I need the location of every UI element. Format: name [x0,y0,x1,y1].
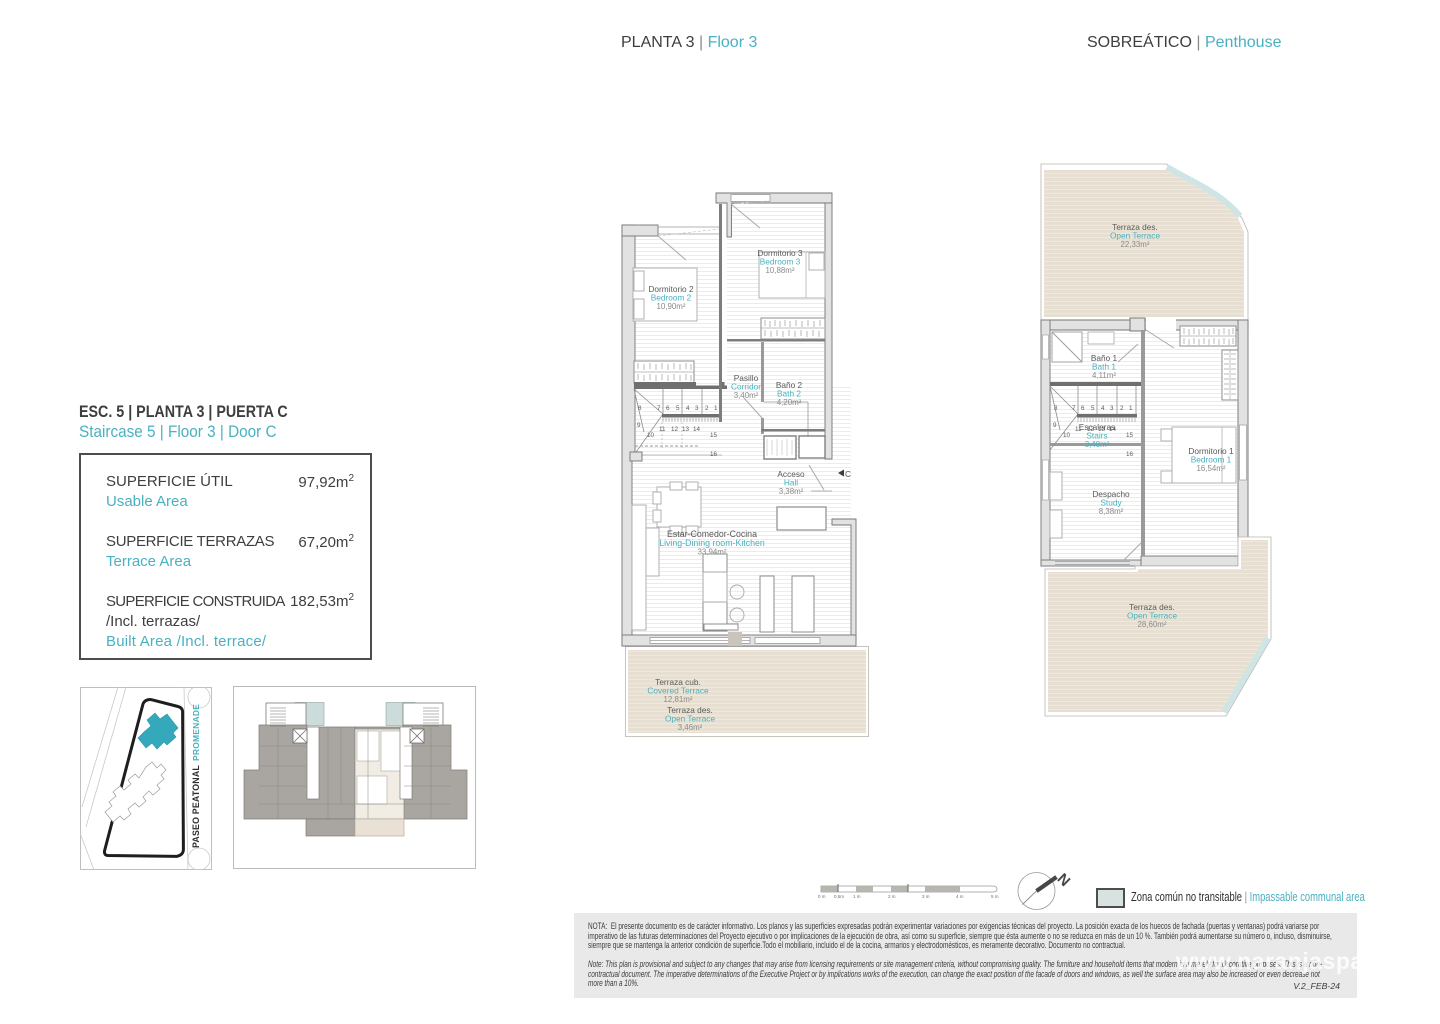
svg-text:1: 1 [714,405,718,412]
svg-text:16,54m²: 16,54m² [1197,464,1226,473]
svg-text:Study: Study [1100,498,1122,508]
svg-text:10,90m²: 10,90m² [657,302,686,311]
svg-text:4: 4 [1101,405,1105,412]
svg-text:5: 5 [1091,405,1095,412]
svg-text:14: 14 [693,426,701,433]
svg-text:7: 7 [657,405,661,412]
svg-text:Bath 1: Bath 1 [1092,362,1116,372]
svg-text:8: 8 [638,405,642,412]
svg-text:8: 8 [1054,405,1058,412]
svg-text:Bedroom 2: Bedroom 2 [651,293,692,303]
svg-text:4,20m²: 4,20m² [777,398,802,407]
svg-text:4 m: 4 m [956,894,964,899]
svg-text:9: 9 [1053,422,1057,429]
svg-text:Covered Terrace: Covered Terrace [647,686,709,696]
svg-text:3: 3 [695,405,699,412]
svg-text:15: 15 [1126,432,1134,439]
svg-text:3,46m²: 3,46m² [678,723,703,732]
svg-text:7: 7 [1072,405,1076,412]
svg-text:1: 1 [1129,405,1133,412]
svg-text:8,38m²: 8,38m² [1099,507,1124,516]
svg-text:11: 11 [659,426,666,433]
svg-text:3,48m²: 3,48m² [1085,440,1110,449]
svg-text:Corridor: Corridor [731,382,761,392]
svg-text:PASEO PEATONAL: PASEO PEATONAL [191,765,201,848]
svg-text:Bedroom 1: Bedroom 1 [1191,455,1232,465]
svg-text:10,88m²: 10,88m² [766,266,795,275]
svg-text:33,94m²: 33,94m² [698,548,727,557]
svg-text:3 m: 3 m [922,894,930,899]
svg-text:Hall: Hall [784,478,798,488]
svg-text:2: 2 [705,405,709,412]
svg-text:Living-Dining room-Kitchen: Living-Dining room-Kitchen [659,538,765,548]
svg-text:N: N [1054,870,1074,890]
svg-text:16: 16 [710,451,718,458]
svg-text:Open Terrace: Open Terrace [665,714,716,724]
svg-text:9: 9 [637,422,641,429]
svg-text:2: 2 [1120,405,1124,412]
svg-text:12: 12 [671,426,679,433]
svg-text:22,33m²: 22,33m² [1121,240,1150,249]
svg-text:13: 13 [682,426,690,433]
svg-text:C: C [845,469,851,479]
svg-text:10: 10 [1063,432,1071,439]
svg-text:3,38m²: 3,38m² [779,487,804,496]
svg-text:Bedroom 3: Bedroom 3 [760,257,801,267]
svg-text:6: 6 [666,405,670,412]
svg-text:4: 4 [686,405,690,412]
svg-text:Bath 2: Bath 2 [777,389,801,399]
svg-text:16: 16 [1126,451,1134,458]
svg-text:28,60m²: 28,60m² [1138,620,1167,629]
svg-text:5: 5 [676,405,680,412]
svg-text:Open Terrace: Open Terrace [1127,611,1178,621]
svg-text:12,81m²: 12,81m² [664,695,693,704]
svg-text:5 m: 5 m [991,894,999,899]
svg-text:15: 15 [710,432,718,439]
svg-text:0,5m: 0,5m [834,894,844,899]
svg-text:0 m: 0 m [818,894,826,899]
svg-text:2 m: 2 m [888,894,896,899]
svg-text:10: 10 [647,432,655,439]
svg-text:4,11m²: 4,11m² [1092,371,1116,380]
svg-text:6: 6 [1081,405,1085,412]
svg-text:3: 3 [1110,405,1114,412]
svg-text:Open Terrace: Open Terrace [1110,231,1161,241]
svg-text:3,40m²: 3,40m² [734,391,759,400]
svg-text:1 m: 1 m [853,894,861,899]
svg-text:PROMENADE: PROMENADE [191,704,201,761]
svg-text:Stairs: Stairs [1086,431,1107,441]
